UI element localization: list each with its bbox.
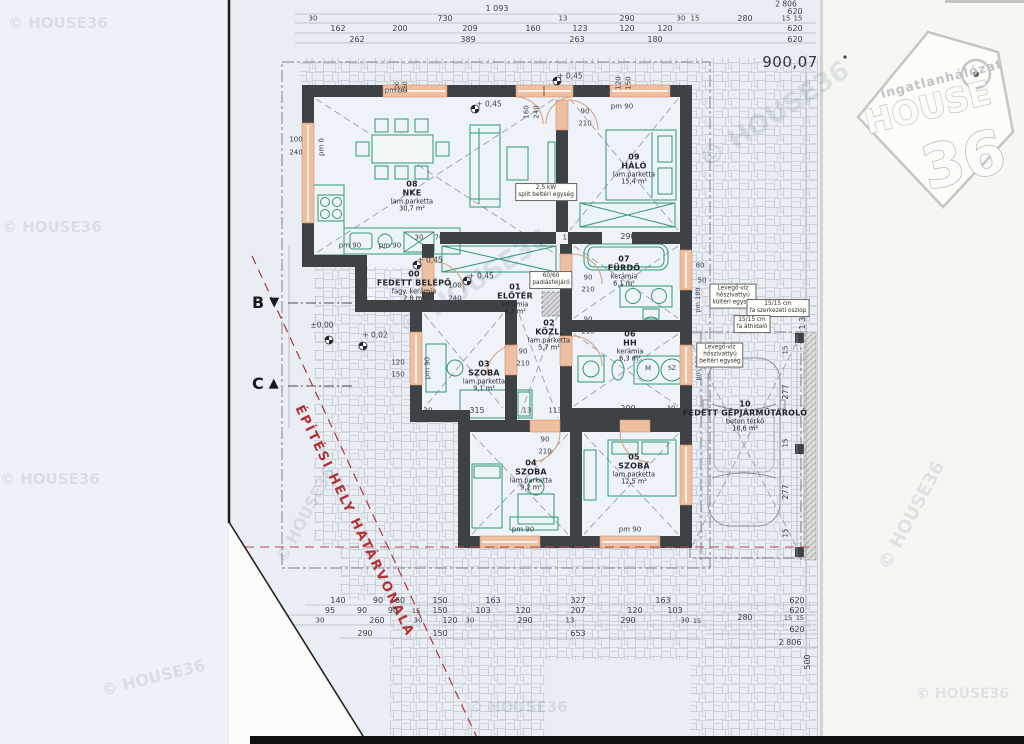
sheet-left-band [0, 0, 228, 744]
house36-logo: ingatlanhálózat HOUSE 36 [848, 22, 1024, 214]
scanned-floor-plan-page: ingatlanhálózat HOUSE 36 900,07 ÉPÍTÉSI … [0, 0, 1024, 744]
plot-number: 900,07 [762, 53, 818, 71]
